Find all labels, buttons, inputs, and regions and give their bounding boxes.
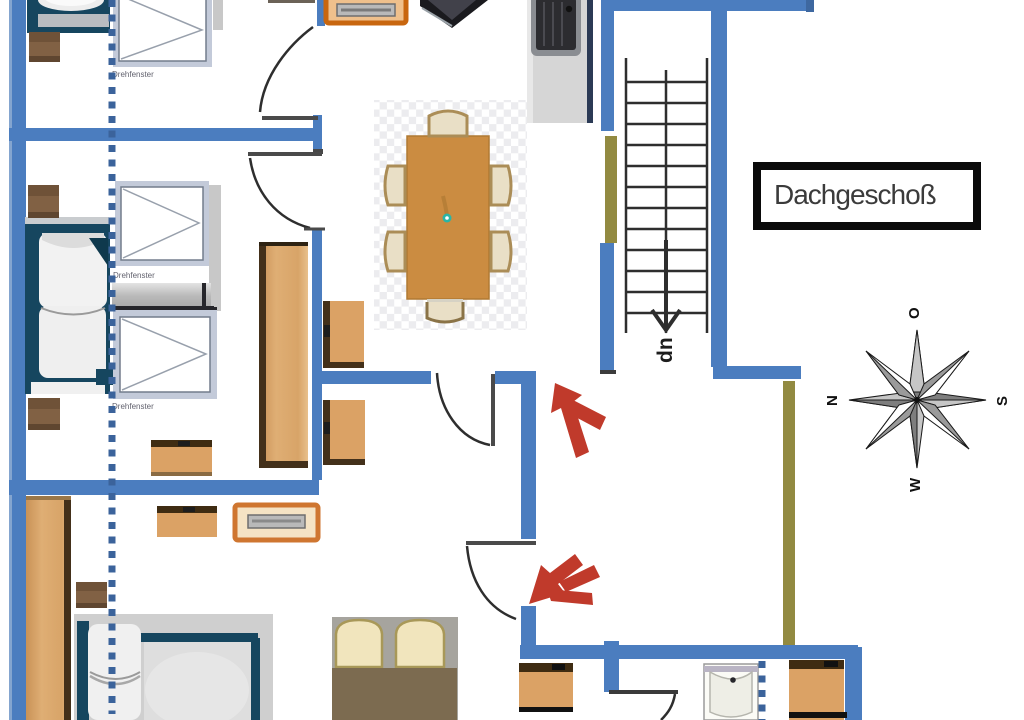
svg-text:N: N <box>824 395 841 406</box>
svg-text:Drehfenster: Drehfenster <box>112 402 154 411</box>
svg-text:S: S <box>994 396 1011 406</box>
svg-text:O: O <box>906 307 923 319</box>
svg-text:Drehfenster: Drehfenster <box>113 271 155 280</box>
svg-text:Drehfenster: Drehfenster <box>112 70 154 79</box>
svg-text:W: W <box>907 477 924 492</box>
svg-text:Dachgeschoß: Dachgeschoß <box>774 179 936 210</box>
svg-text:dn: dn <box>654 337 677 363</box>
